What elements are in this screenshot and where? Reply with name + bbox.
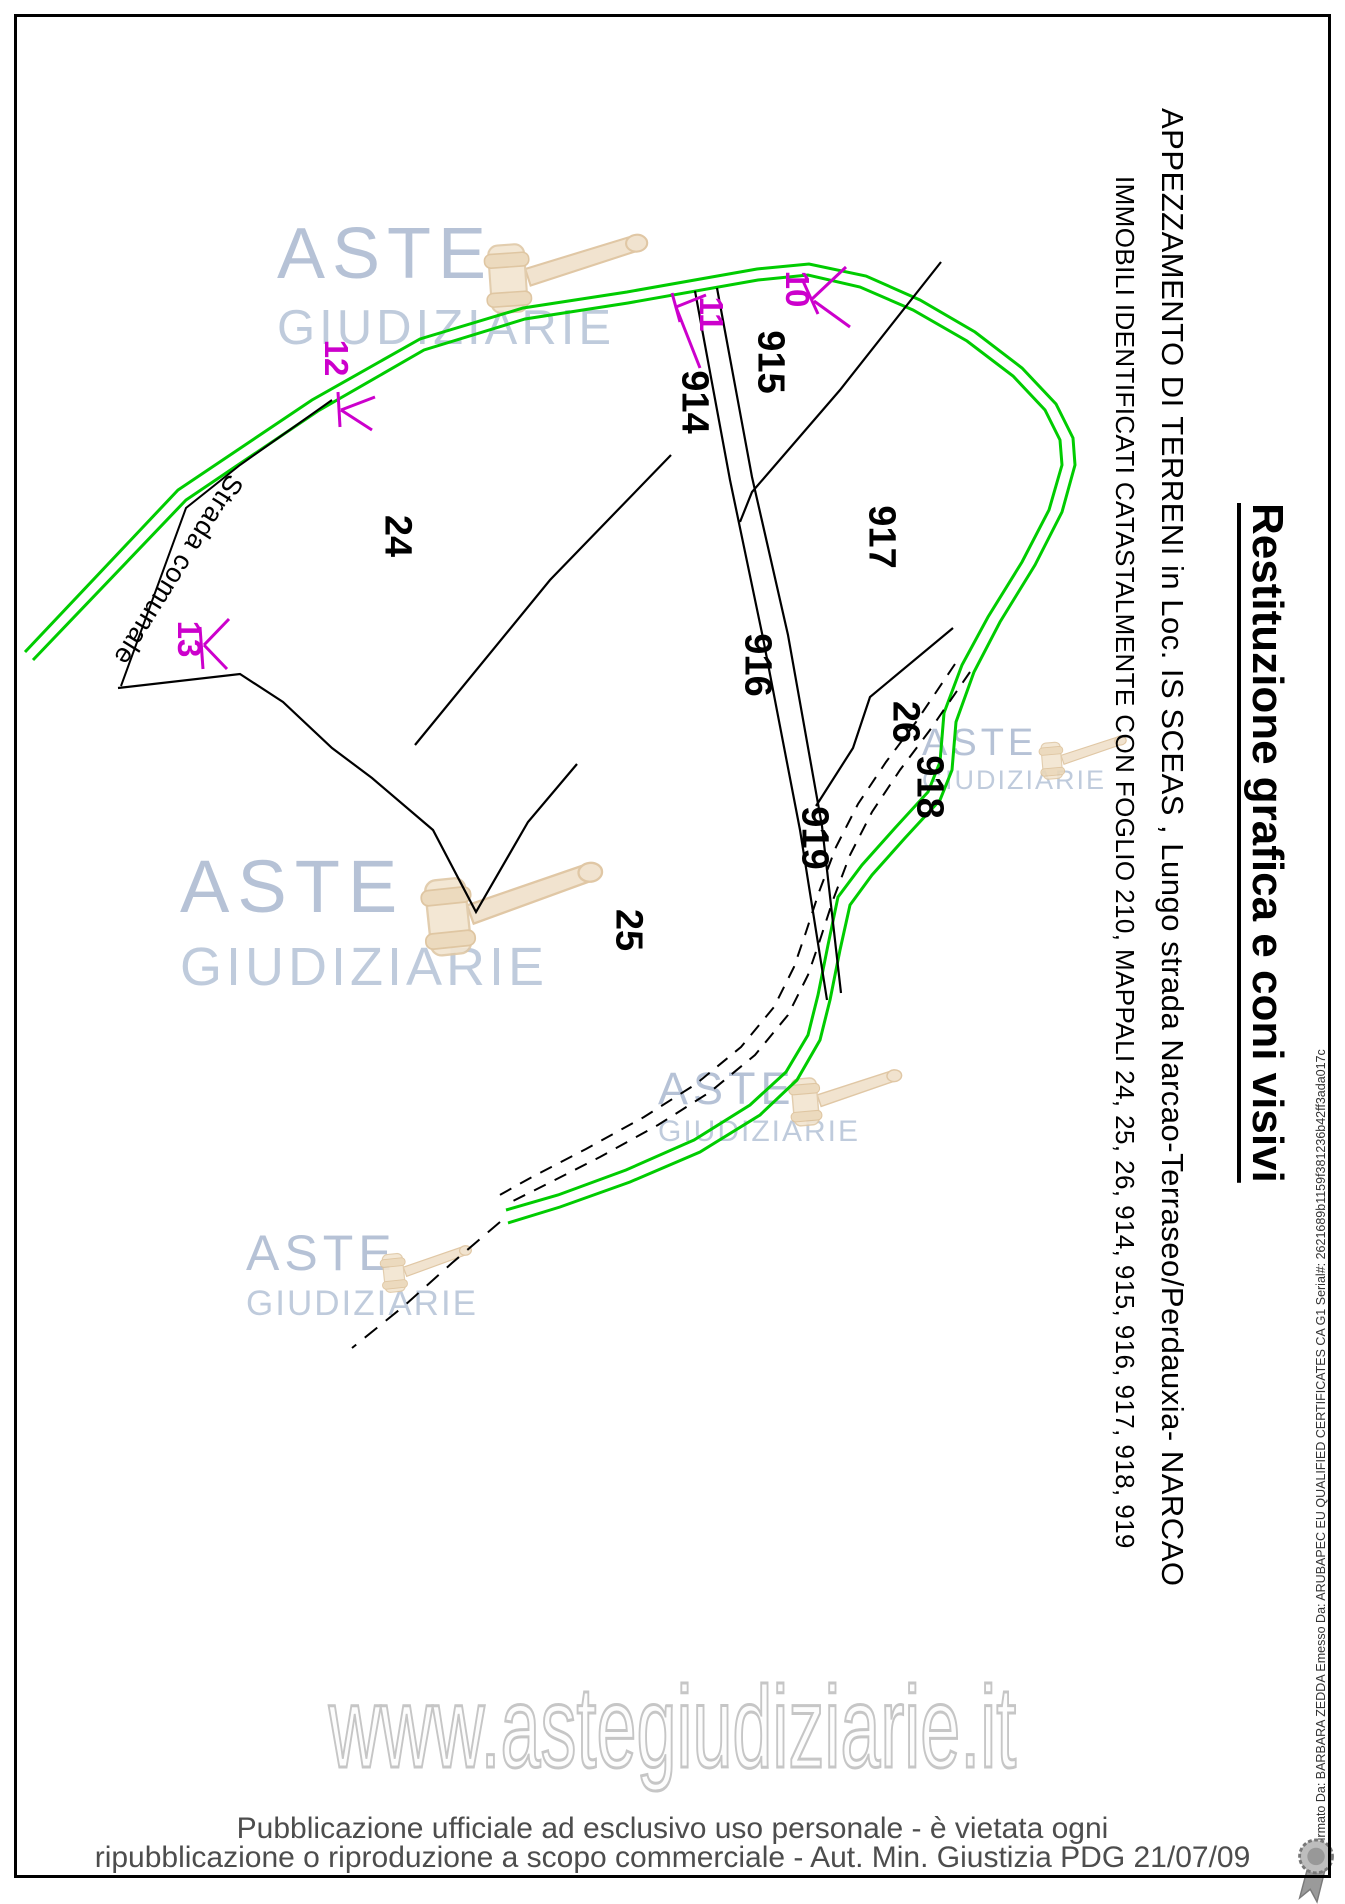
cadastral-map-drawing <box>0 0 1345 1903</box>
cone-label-12: 12 <box>317 340 355 377</box>
parcel-label-26: 26 <box>884 701 927 743</box>
parcel-label-24: 24 <box>376 515 419 557</box>
boundary-24-east <box>415 455 671 745</box>
boundary-parcel24-road-edge <box>121 400 332 686</box>
caption-location: APPEZZAMENTO DI TERRENI in Loc. IS SCEAS… <box>1154 108 1190 1586</box>
signature-margin-text: Firmato Da: BARBARA ZEDDA Emesso Da: ARU… <box>1314 1049 1328 1848</box>
cone-label-10: 10 <box>778 271 816 308</box>
boundary-24-25 <box>118 674 577 912</box>
footer-watermark-wrap: www.astegiudiziarie.it <box>14 1660 1331 1794</box>
dashed-track-continuation <box>352 1222 500 1348</box>
page-title: Restituzione grafica e coni visivi <box>1242 503 1292 1183</box>
parcel-label-915: 915 <box>749 330 792 393</box>
dashed-track-1 <box>505 672 970 1205</box>
cone-label-11: 11 <box>692 297 730 332</box>
footer-legal-line2: ripubblicazione o riproduzione a scopo c… <box>14 1841 1331 1875</box>
parcel-label-914: 914 <box>673 370 716 433</box>
road-outer-line <box>25 264 1075 1223</box>
seal-ribbon-icon <box>1288 1834 1345 1904</box>
footer-watermark-url: www.astegiudiziarie.it <box>329 1660 1017 1794</box>
parcel-label-25: 25 <box>607 909 650 951</box>
parcel-label-919: 919 <box>793 806 836 869</box>
dashed-track-2 <box>498 664 955 1196</box>
parcel-label-918: 918 <box>908 755 951 818</box>
cone-label-13: 13 <box>170 621 208 658</box>
parcel-label-916: 916 <box>736 633 779 696</box>
parcel-label-917: 917 <box>860 505 903 568</box>
caption-cadastral-ids: IMMOBILI IDENTIFICATI CATASTALMENTE CON … <box>1109 176 1140 1549</box>
